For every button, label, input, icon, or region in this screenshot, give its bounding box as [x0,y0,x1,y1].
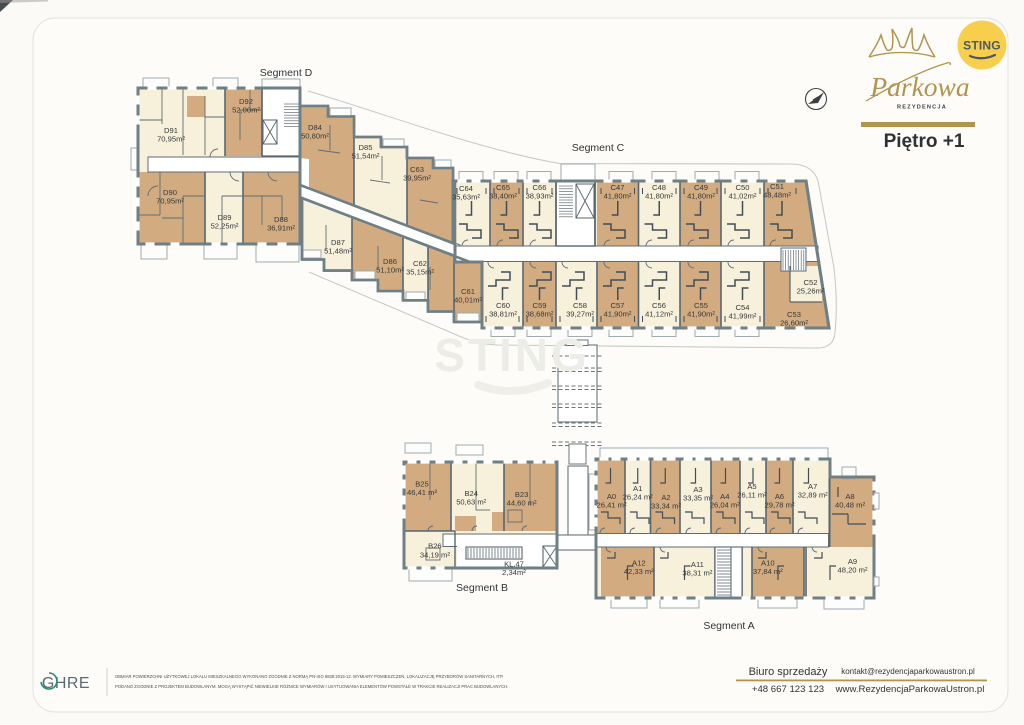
svg-text:38,31 m²: 38,31 m² [682,569,712,578]
svg-text:39,27m²: 39,27m² [566,310,594,319]
svg-text:25,26m²: 25,26m² [797,287,825,296]
svg-text:29,78 m²: 29,78 m² [765,501,795,510]
svg-text:70,95m²: 70,95m² [156,197,184,206]
svg-text:41,80m²: 41,80m² [604,192,632,201]
svg-text:41,12m²: 41,12m² [645,310,673,319]
svg-text:48,48m²: 48,48m² [763,191,791,200]
svg-text:48,20 m²: 48,20 m² [838,566,868,575]
svg-text:40,48 m²: 40,48 m² [835,501,865,510]
svg-text:41,99m²: 41,99m² [729,312,757,321]
svg-text:Segment D: Segment D [260,67,313,79]
svg-text:26,60m²: 26,60m² [780,319,808,328]
svg-text:42,33 m²: 42,33 m² [624,567,654,576]
svg-text:26,11 m²: 26,11 m² [737,491,767,500]
svg-text:OBMIAR POWIERZCHNI UŻYTKOWEJ L: OBMIAR POWIERZCHNI UŻYTKOWEJ LOKALU MIES… [115,674,504,679]
svg-text:44,60 m²: 44,60 m² [507,499,537,508]
svg-text:50,80m²: 50,80m² [301,132,329,141]
svg-text:Biuro sprzedaży: Biuro sprzedaży [749,666,828,678]
svg-text:70,95m²: 70,95m² [157,135,185,144]
svg-text:41,02m²: 41,02m² [729,192,757,201]
svg-text:38,81m²: 38,81m² [489,310,517,319]
svg-text:Piętro +1: Piętro +1 [884,131,965,152]
svg-text:37,84 m²: 37,84 m² [753,567,783,576]
svg-text:Segment B: Segment B [456,582,508,594]
svg-text:26,24 m²: 26,24 m² [623,493,653,502]
svg-text:26,04 m²: 26,04 m² [710,501,740,510]
svg-text:41,80m²: 41,80m² [687,192,715,201]
svg-text:52,25m²: 52,25m² [211,222,239,231]
svg-text:PODANO ZGODNIE Z PROJEKTEM BUD: PODANO ZGODNIE Z PROJEKTEM BUDOWLANYM. M… [115,684,508,689]
svg-text:Parkowa: Parkowa [869,71,969,102]
svg-text:kontakt@rezydencjaparkowaustro: kontakt@rezydencjaparkowaustron.pl [841,667,975,676]
svg-text:41,80m²: 41,80m² [645,192,673,201]
svg-text:36,91m²: 36,91m² [267,224,295,233]
svg-text:40,01m²: 40,01m² [454,296,482,305]
svg-text:REZYDENCJA: REZYDENCJA [897,105,947,111]
svg-text:2,34m²: 2,34m² [502,568,526,577]
svg-text:50,63 m²: 50,63 m² [456,498,486,507]
svg-text:STING: STING [963,39,1001,53]
svg-text:38,93m²: 38,93m² [526,192,554,201]
svg-text:35,63m²: 35,63m² [452,193,480,202]
svg-text:STING: STING [434,329,590,381]
svg-text:Segment A: Segment A [703,620,754,632]
svg-text:51,54m²: 51,54m² [352,152,380,161]
svg-text:34,19 m²: 34,19 m² [420,550,450,559]
svg-text:32,89 m²: 32,89 m² [798,491,828,500]
svg-text:41,90m²: 41,90m² [687,310,715,319]
svg-text:www.RezydencjaParkowaUstron.pl: www.RezydencjaParkowaUstron.pl [835,684,985,695]
svg-text:52,00m²: 52,00m² [232,106,260,115]
svg-text:51,10m²: 51,10m² [376,266,404,275]
svg-text:33,34 m²: 33,34 m² [651,502,681,511]
svg-text:38,68m²: 38,68m² [526,310,554,319]
svg-text:51,48m²: 51,48m² [324,247,352,256]
svg-text:41,90m²: 41,90m² [604,310,632,319]
svg-text:Segment C: Segment C [572,142,625,154]
svg-text:+48 667 123 123: +48 667 123 123 [752,684,824,695]
svg-text:35,15m²: 35,15m² [406,268,434,277]
svg-text:26,41 m²: 26,41 m² [597,501,627,510]
svg-text:38,40m²: 38,40m² [489,192,517,201]
svg-text:39,95m²: 39,95m² [403,174,431,183]
svg-text:46,41 m²: 46,41 m² [407,488,437,497]
